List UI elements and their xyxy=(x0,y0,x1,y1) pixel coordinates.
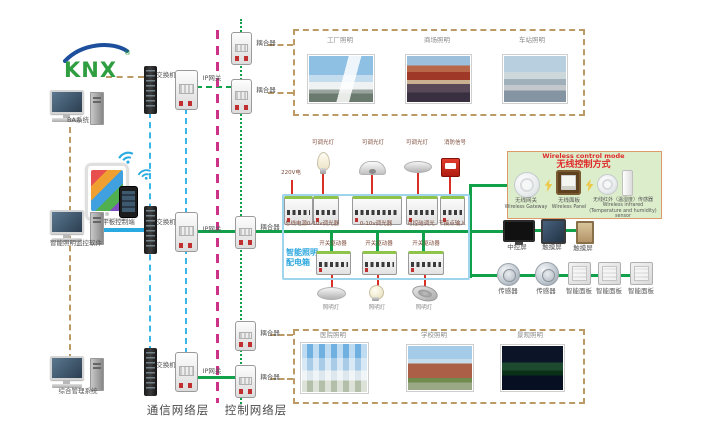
sensor-link-line xyxy=(472,274,497,277)
wireless-panel-icon xyxy=(556,170,581,195)
switch-driver-label: 开关驱动器 xyxy=(314,241,352,248)
touch-screen-icon xyxy=(576,221,594,244)
photo-station-lighting xyxy=(502,54,568,104)
photo-landscape-lighting xyxy=(500,344,565,392)
smart-panel-icon xyxy=(598,262,621,285)
ip-gateway-label: IP网关 xyxy=(196,226,228,234)
wireless-gateway-label-zh: 无线网关 xyxy=(502,198,550,205)
wireless-sensor-stick-icon xyxy=(622,170,633,196)
central-screen-icon xyxy=(503,220,535,242)
scene-label-station: 车站照明 xyxy=(501,37,563,45)
wifi-icon xyxy=(134,164,154,183)
pc-switch-blue-line xyxy=(104,228,145,232)
coupler-device xyxy=(231,79,252,114)
sensor-icon xyxy=(535,262,559,286)
ceiling-lamp-icon xyxy=(317,287,346,300)
wireless-sensor-round-icon xyxy=(597,174,618,195)
spotlight-icon xyxy=(411,283,440,304)
photo-school-lighting xyxy=(406,344,474,392)
wireless-branch-line xyxy=(469,184,508,187)
smart-panel-label: 智能面板 xyxy=(591,288,627,296)
coupler-label: 耦合器 xyxy=(249,40,283,48)
scene-label-mall: 商场照明 xyxy=(406,37,468,45)
ethernet-switch-device xyxy=(144,206,157,254)
dimmable-lamp-label: 可调光灯 xyxy=(352,140,394,147)
sensor-icon xyxy=(497,263,520,286)
layer-divider-line xyxy=(216,30,219,403)
dry-contact-label: 干接点输入 xyxy=(432,221,472,228)
gateway3-coupler-line xyxy=(196,376,236,379)
phone-device xyxy=(119,186,138,218)
lamp-label: 照明灯 xyxy=(363,305,391,312)
touch-screen-label: 触摸屏 xyxy=(568,245,598,253)
fire-signal-line xyxy=(449,176,451,196)
coupler-label: 耦合器 xyxy=(253,330,287,338)
bulb-base xyxy=(320,168,326,174)
monitor xyxy=(50,356,84,380)
wireless-sensor-label-en: Wireless infrared (Temperature and humid… xyxy=(588,203,658,220)
ip-gateway-device xyxy=(175,70,198,110)
ceiling-lamp-icon xyxy=(404,161,432,173)
lamp-label: 照明灯 xyxy=(317,305,345,312)
sensor-link-line xyxy=(518,274,535,277)
wireless-gateway-icon xyxy=(514,172,540,198)
coupler-device xyxy=(231,32,252,65)
smart-panel-icon xyxy=(568,262,591,285)
coupler-label: 耦合器 xyxy=(249,87,283,95)
wireless-panel-label-zh: 无线面板 xyxy=(550,198,588,205)
scene-label-factory: 工厂照明 xyxy=(309,37,371,45)
gateway1-coupler-dashed-line xyxy=(196,86,232,88)
downlight-icon xyxy=(359,161,386,175)
lamp-feed-line xyxy=(371,174,373,196)
monitoring-software-label: 智能照明监控软件 xyxy=(18,240,134,248)
switch-driver-module xyxy=(362,251,397,275)
knx-logo-reg: ® xyxy=(124,49,131,57)
knx-logo: KNX ® xyxy=(60,40,132,82)
lamp-feed-line xyxy=(322,174,324,196)
knx-logo-text: KNX xyxy=(64,58,117,82)
sensor-label: 传感器 xyxy=(528,288,564,296)
coupler-device xyxy=(235,216,256,249)
ip-gateway-label: IP网关 xyxy=(196,368,228,376)
ctrl-layer-label: 控制网络层 xyxy=(224,402,288,418)
dimmable-lamp-label: 可调光灯 xyxy=(396,140,438,147)
management-system-label: 综合管理系统 xyxy=(38,388,118,396)
touch-screen-label: 触摸屏 xyxy=(534,244,570,252)
switch-driver-module xyxy=(408,251,444,275)
photo-hospital-lighting xyxy=(300,342,369,394)
switch-driver-label: 开关驱动器 xyxy=(407,241,445,248)
ip-gateway-device xyxy=(175,212,198,252)
mains-input-label: 220V电 xyxy=(272,170,310,177)
switch-driver-label: 开关驱动器 xyxy=(360,241,398,248)
monitor xyxy=(50,210,84,234)
ip-gateway-device xyxy=(175,352,198,392)
dimmer-label: 0-10v调光器 xyxy=(297,221,349,228)
comm-layer-label: 通信网络层 xyxy=(146,402,210,418)
photo-mall-lighting xyxy=(405,54,472,104)
scene-label-school: 学校照明 xyxy=(403,332,465,340)
scene-label-hospital: 医院照明 xyxy=(302,332,364,340)
scene-label-landscape: 景观照明 xyxy=(499,332,561,340)
wireless-title-zh: 无线控制方式 xyxy=(507,160,660,171)
coupler-label: 耦合器 xyxy=(253,374,287,382)
fire-alarm-icon xyxy=(441,158,460,177)
bulb-base xyxy=(372,297,379,301)
touch-screen-icon xyxy=(541,219,566,244)
central-screen-label: 中控屏 xyxy=(498,244,536,252)
ba-system-label: BA系统 xyxy=(38,117,118,125)
smart-panel-label: 智能面板 xyxy=(623,288,659,296)
fire-signal-label: 消防信号 xyxy=(434,140,476,147)
dimmable-lamp-label: 可调光灯 xyxy=(302,140,344,147)
monitor xyxy=(50,90,84,114)
lamp-label: 照明灯 xyxy=(410,305,438,312)
lamp-feed-line xyxy=(417,172,419,196)
wireless-panel-label-en: Wireless Panel xyxy=(546,205,592,211)
dimmer-label: 0-10v调光器 xyxy=(350,221,402,228)
switch-driver-module xyxy=(316,251,351,275)
ip-gateway-label: IP网关 xyxy=(196,75,228,83)
knx-lighting-system-diagram: 智能照明 配电箱 Wireless control mode 无线控制方式 KN… xyxy=(0,0,715,443)
sensor-label: 传感器 xyxy=(490,288,526,296)
smart-panel-icon xyxy=(630,262,653,285)
photo-factory-lighting xyxy=(307,54,375,104)
ethernet-switch-device xyxy=(144,348,157,396)
